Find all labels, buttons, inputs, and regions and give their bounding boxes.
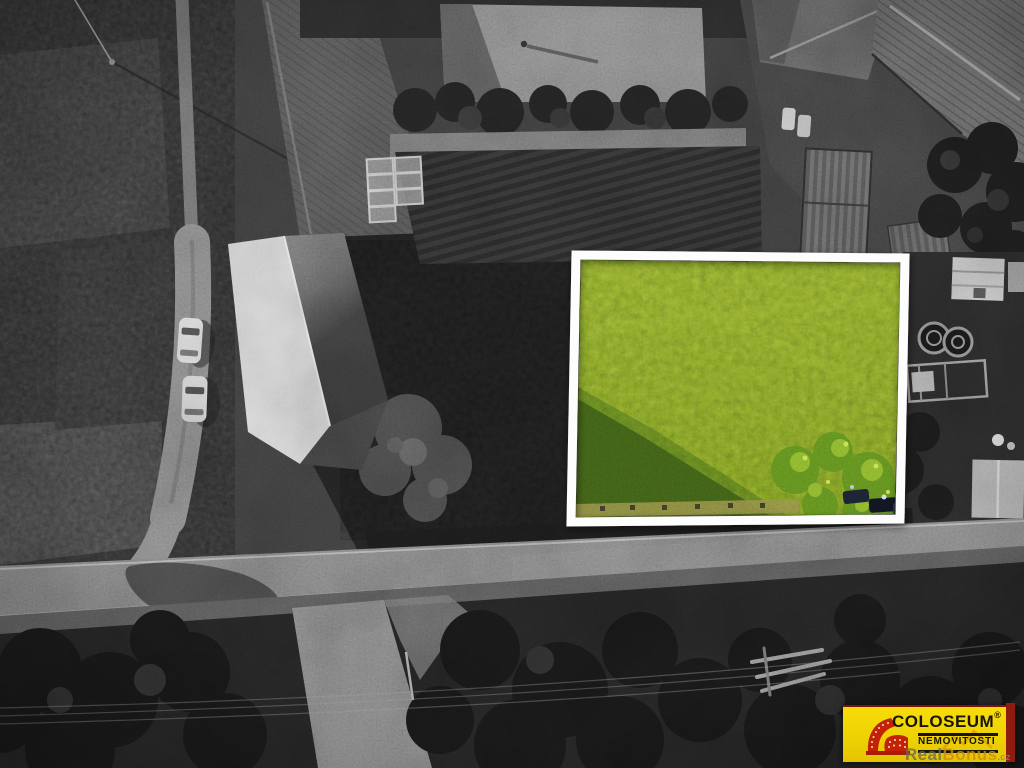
- aerial-photo: COLOSEUM® NEMOVITOSTI RealBonus.cz: [0, 0, 1024, 768]
- watermark-realbonus: RealBonus.cz: [905, 745, 1011, 765]
- agency-logo: COLOSEUM® NEMOVITOSTI RealBonus.cz: [843, 705, 1015, 762]
- vignette: [0, 0, 1024, 768]
- aerial-photo-canvas: [0, 0, 1024, 768]
- logo-brand-text: COLOSEUM®: [892, 710, 1001, 732]
- registered-mark: ®: [994, 710, 1001, 720]
